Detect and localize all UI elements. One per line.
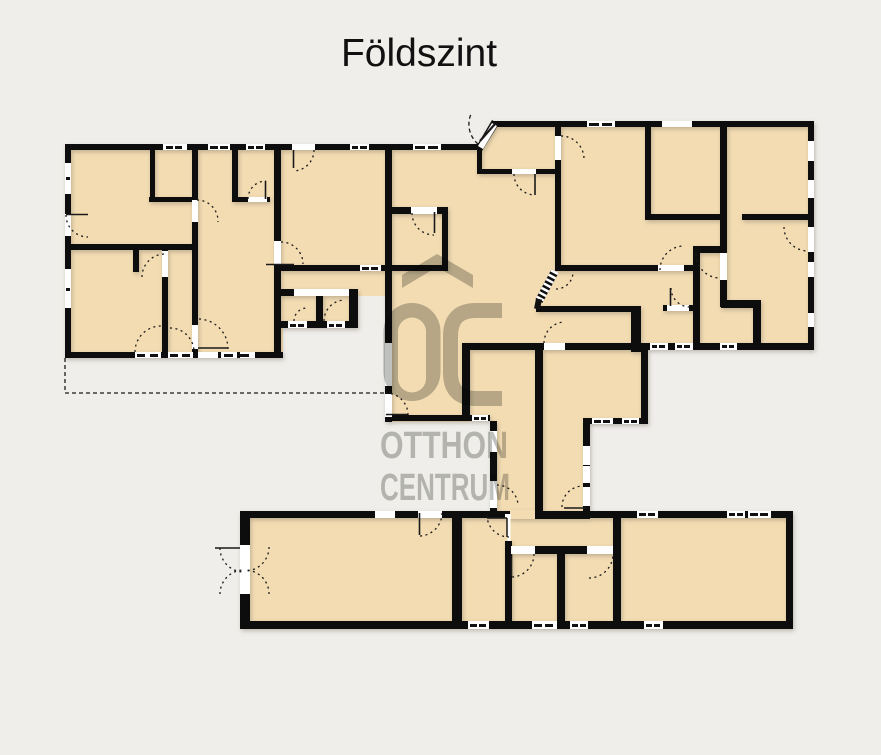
svg-text:CENTRUM: CENTRUM <box>380 467 510 509</box>
svg-text:OTTHON: OTTHON <box>380 425 508 467</box>
svg-text:Földszint: Földszint <box>341 32 497 75</box>
